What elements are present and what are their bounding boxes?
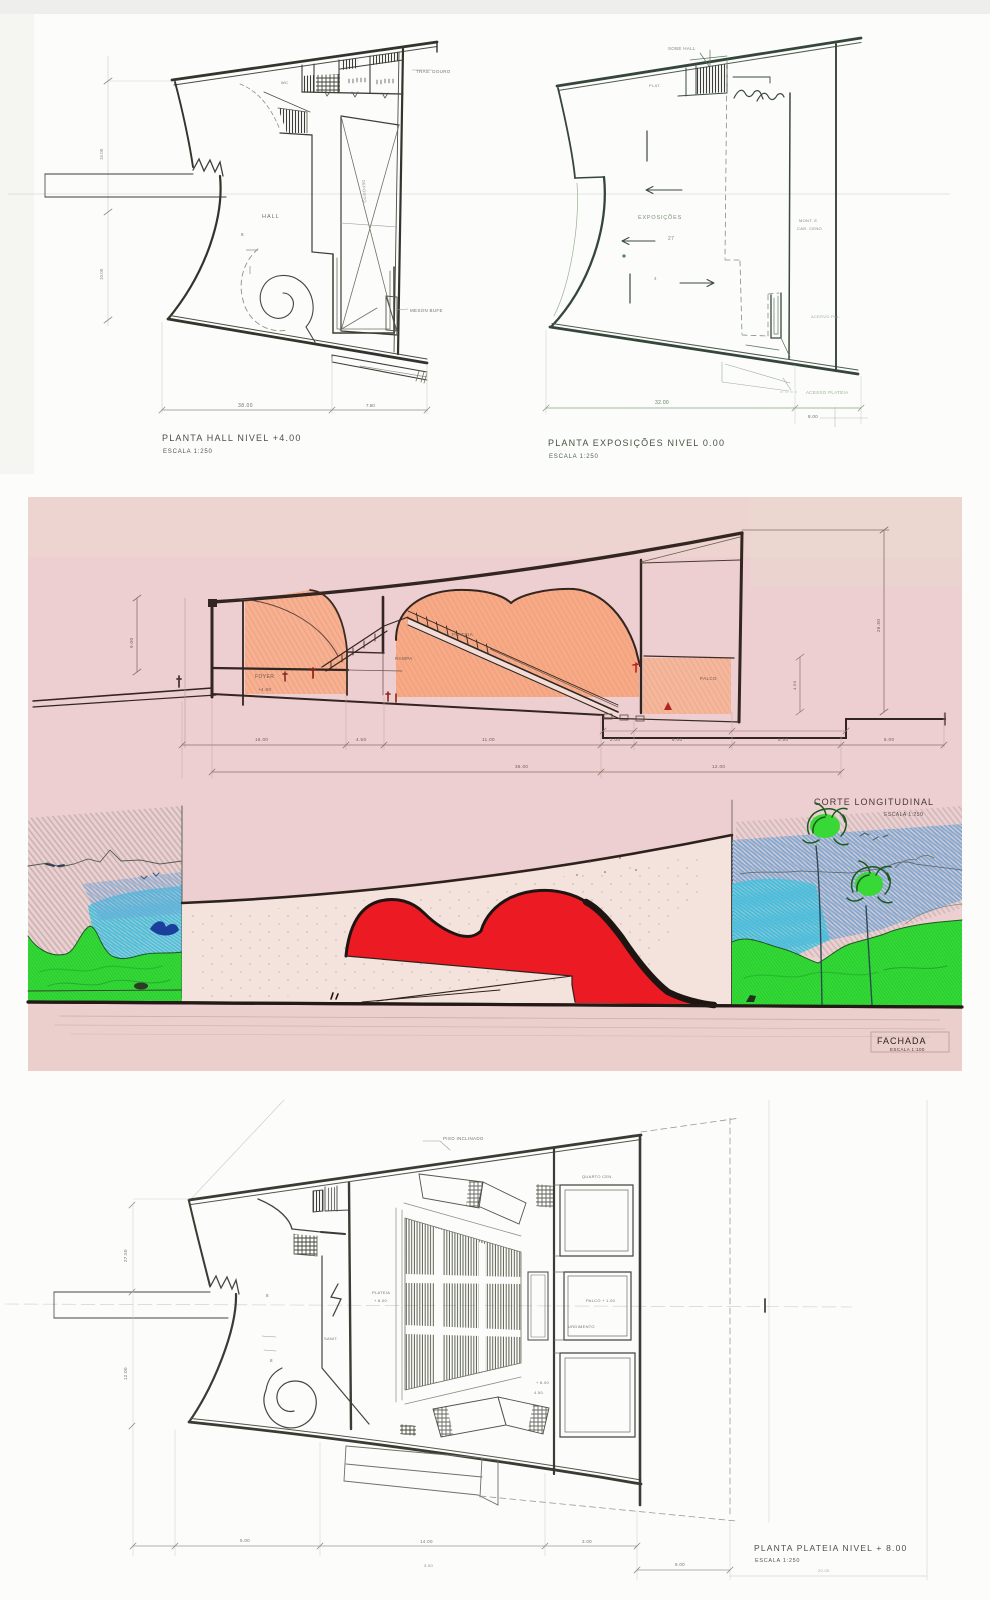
svg-text:8: 8 — [266, 1293, 269, 1298]
svg-text:FOYER: FOYER — [255, 674, 274, 680]
svg-text:ACESSO PLATEIA: ACESSO PLATEIA — [806, 390, 848, 395]
svg-text:MESON BUFE: MESON BUFE — [410, 308, 443, 313]
svg-text:2.00: 2.00 — [610, 737, 620, 742]
svg-text:26.50: 26.50 — [876, 619, 881, 632]
svg-text:16.00: 16.00 — [255, 737, 268, 742]
svg-text:9.00: 9.00 — [129, 638, 134, 648]
svg-text:32.00: 32.00 — [655, 400, 669, 406]
svg-text:15.00: 15.00 — [99, 148, 104, 160]
svg-text:4.50: 4.50 — [356, 737, 366, 742]
svg-text:3.00: 3.00 — [424, 1563, 433, 1568]
svg-text:12.00: 12.00 — [123, 1367, 128, 1380]
svg-text:PALCO + 1.00: PALCO + 1.00 — [586, 1298, 616, 1303]
svg-text:5.00: 5.00 — [240, 1538, 250, 1543]
svg-text:PISO INCLINADO: PISO INCLINADO — [443, 1136, 484, 1141]
svg-text:PLATEIA: PLATEIA — [452, 632, 473, 637]
svg-text:4: 4 — [654, 276, 657, 281]
svg-text:14.00: 14.00 — [420, 1539, 433, 1544]
svg-text:38.00: 38.00 — [238, 403, 253, 409]
svg-text:PLANTA PLATEIA NIVEL + 8.00: PLANTA PLATEIA NIVEL + 8.00 — [754, 1543, 907, 1553]
svg-text:HALL: HALL — [262, 214, 280, 220]
svg-text:ESCALA 1:250: ESCALA 1:250 — [549, 454, 599, 460]
svg-text:CAR. CENO: CAR. CENO — [797, 226, 822, 231]
svg-text:11.00: 11.00 — [482, 737, 495, 742]
svg-text:27.50: 27.50 — [123, 1249, 128, 1262]
svg-text:+ 8.00: + 8.00 — [536, 1380, 550, 1385]
svg-text:QUARTO CEN.: QUARTO CEN. — [582, 1174, 613, 1179]
svg-text:6.00: 6.00 — [884, 737, 894, 742]
svg-text:PALCO: PALCO — [700, 676, 717, 681]
svg-text:5.50: 5.50 — [778, 737, 788, 742]
svg-text:ESCALA 1:250: ESCALA 1:250 — [163, 449, 213, 455]
svg-text:SOBE HALL: SOBE HALL — [668, 46, 696, 51]
svg-text:ESCALA 1:250: ESCALA 1:250 — [755, 1558, 800, 1564]
svg-text:WC: WC — [281, 80, 288, 85]
svg-text:4.50: 4.50 — [534, 1390, 543, 1395]
svg-text:4.50: 4.50 — [792, 680, 797, 690]
svg-text:ACERVO PAL.: ACERVO PAL. — [811, 314, 841, 319]
svg-text:FACHADA: FACHADA — [877, 1036, 927, 1046]
svg-text:EXPOSIÇÕES: EXPOSIÇÕES — [638, 214, 682, 221]
svg-text:12.00: 12.00 — [712, 764, 725, 769]
svg-text:36.00: 36.00 — [515, 764, 528, 769]
svg-text:+4.00: +4.00 — [258, 687, 271, 692]
svg-text:20.00: 20.00 — [818, 1568, 830, 1573]
svg-text:10.00: 10.00 — [99, 268, 104, 280]
svg-text:3.00: 3.00 — [582, 1539, 592, 1544]
svg-text:MONT. E: MONT. E — [799, 218, 817, 223]
svg-text:6.00: 6.00 — [672, 737, 682, 742]
svg-text:PLANTA EXPOSIÇÕES NIVEL 0.00: PLANTA EXPOSIÇÕES NIVEL 0.00 — [548, 438, 725, 448]
svg-text:TRAS. DOURO: TRAS. DOURO — [416, 69, 451, 74]
svg-text:URDIMENTO: URDIMENTO — [568, 1324, 595, 1329]
svg-text:PLATEIA: PLATEIA — [372, 1290, 390, 1295]
svg-text:PLAT.: PLAT. — [649, 83, 661, 88]
svg-text:CORTE LONGITUDINAL: CORTE LONGITUDINAL — [814, 797, 934, 807]
svg-text:PLANTA HALL NIVEL +4.00: PLANTA HALL NIVEL +4.00 — [162, 433, 302, 443]
svg-text:8.00: 8.00 — [675, 1562, 685, 1567]
svg-text:8.00: 8.00 — [808, 414, 818, 419]
svg-text:8: 8 — [270, 1358, 273, 1363]
svg-text:SANIT.: SANIT. — [324, 1336, 338, 1341]
svg-text:27: 27 — [668, 236, 674, 242]
svg-text:RAMPA: RAMPA — [395, 656, 413, 661]
svg-text:+ 8.00: + 8.00 — [374, 1298, 388, 1303]
svg-text:7.50: 7.50 — [366, 403, 375, 408]
svg-text:ESCALA 1:100: ESCALA 1:100 — [890, 1047, 925, 1052]
